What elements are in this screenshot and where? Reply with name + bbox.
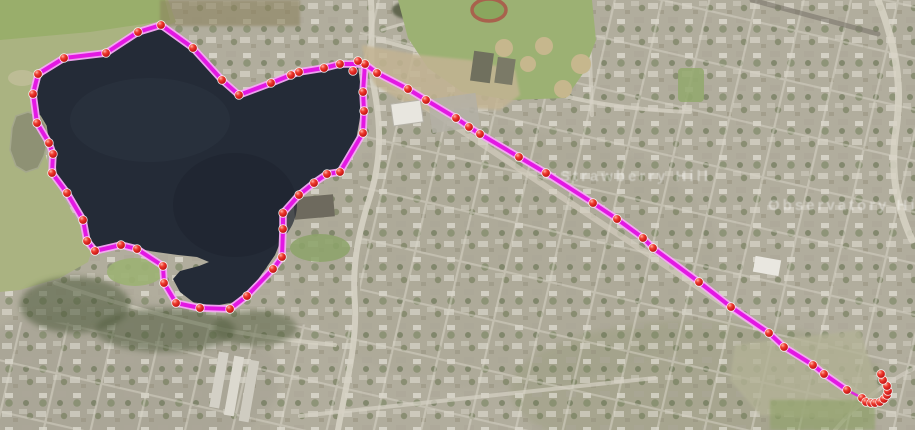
waypoint-marker[interactable] bbox=[29, 90, 38, 99]
waypoint-marker[interactable] bbox=[218, 76, 227, 85]
waypoint-marker[interactable] bbox=[820, 370, 829, 379]
waypoint-marker[interactable] bbox=[336, 168, 345, 177]
waypoint-marker[interactable] bbox=[279, 209, 288, 218]
waypoint-marker[interactable] bbox=[279, 225, 288, 234]
waypoint-marker[interactable] bbox=[134, 28, 143, 37]
waypoint-marker[interactable] bbox=[780, 343, 789, 352]
waypoint-marker[interactable] bbox=[360, 107, 369, 116]
waypoint-marker[interactable] bbox=[354, 57, 363, 66]
waypoint-marker[interactable] bbox=[310, 179, 319, 188]
faint-map-label-2: Observatory Hill bbox=[768, 197, 915, 214]
waypoint-marker[interactable] bbox=[48, 169, 57, 178]
waypoint-marker[interactable] bbox=[542, 169, 551, 178]
waypoint-marker[interactable] bbox=[49, 150, 58, 159]
waypoint-marker[interactable] bbox=[649, 244, 658, 253]
waypoint-marker[interactable] bbox=[160, 279, 169, 288]
waypoint-marker[interactable] bbox=[172, 299, 181, 308]
waypoint-marker[interactable] bbox=[695, 278, 704, 287]
waypoint-marker[interactable] bbox=[287, 71, 296, 80]
waypoint-marker[interactable] bbox=[843, 386, 852, 395]
waypoint-marker[interactable] bbox=[33, 119, 42, 128]
waypoint-marker[interactable] bbox=[79, 216, 88, 225]
waypoint-marker[interactable] bbox=[465, 123, 474, 132]
aerial-map-canvas[interactable]: Strawberry Hill Observatory Hill bbox=[0, 0, 915, 430]
waypoint-marker[interactable] bbox=[323, 170, 332, 179]
waypoint-marker[interactable] bbox=[117, 241, 126, 250]
waypoint-marker[interactable] bbox=[60, 54, 69, 63]
waypoint-marker[interactable] bbox=[515, 153, 524, 162]
waypoint-marker[interactable] bbox=[359, 88, 368, 97]
map-viewport[interactable]: Strawberry Hill Observatory Hill bbox=[0, 0, 915, 430]
waypoint-marker[interactable] bbox=[613, 215, 622, 224]
waypoint-marker[interactable] bbox=[133, 245, 142, 254]
waypoint-marker[interactable] bbox=[226, 305, 235, 314]
waypoint-marker[interactable] bbox=[589, 199, 598, 208]
waypoint-marker[interactable] bbox=[243, 292, 252, 301]
waypoint-marker[interactable] bbox=[336, 60, 345, 69]
waypoint-marker[interactable] bbox=[476, 130, 485, 139]
waypoint-marker[interactable] bbox=[83, 237, 92, 246]
faint-map-label-1: Strawberry Hill bbox=[560, 168, 711, 185]
waypoint-marker[interactable] bbox=[877, 370, 886, 379]
waypoint-marker[interactable] bbox=[267, 79, 276, 88]
waypoint-marker[interactable] bbox=[295, 191, 304, 200]
waypoint-marker[interactable] bbox=[639, 234, 648, 243]
waypoint-marker[interactable] bbox=[157, 21, 166, 30]
waypoint-marker[interactable] bbox=[320, 64, 329, 73]
waypoint-marker[interactable] bbox=[159, 262, 168, 271]
waypoint-marker[interactable] bbox=[404, 85, 413, 94]
waypoint-marker[interactable] bbox=[727, 303, 736, 312]
waypoint-marker[interactable] bbox=[45, 139, 54, 148]
waypoint-marker[interactable] bbox=[422, 96, 431, 105]
waypoint-marker[interactable] bbox=[278, 253, 287, 262]
waypoint-marker[interactable] bbox=[91, 247, 100, 256]
waypoint-marker[interactable] bbox=[34, 70, 43, 79]
waypoint-marker[interactable] bbox=[235, 91, 244, 100]
waypoint-marker[interactable] bbox=[189, 44, 198, 53]
waypoint-marker[interactable] bbox=[102, 49, 111, 58]
waypoint-marker[interactable] bbox=[809, 361, 818, 370]
waypoint-marker[interactable] bbox=[349, 67, 358, 76]
waypoint-marker[interactable] bbox=[452, 114, 461, 123]
waypoint-marker[interactable] bbox=[359, 129, 368, 138]
waypoint-marker[interactable] bbox=[196, 304, 205, 313]
waypoint-marker[interactable] bbox=[63, 189, 72, 198]
waypoint-marker[interactable] bbox=[765, 329, 774, 338]
waypoint-marker[interactable] bbox=[295, 68, 304, 77]
waypoint-marker[interactable] bbox=[269, 265, 278, 274]
waypoint-marker[interactable] bbox=[373, 69, 382, 78]
